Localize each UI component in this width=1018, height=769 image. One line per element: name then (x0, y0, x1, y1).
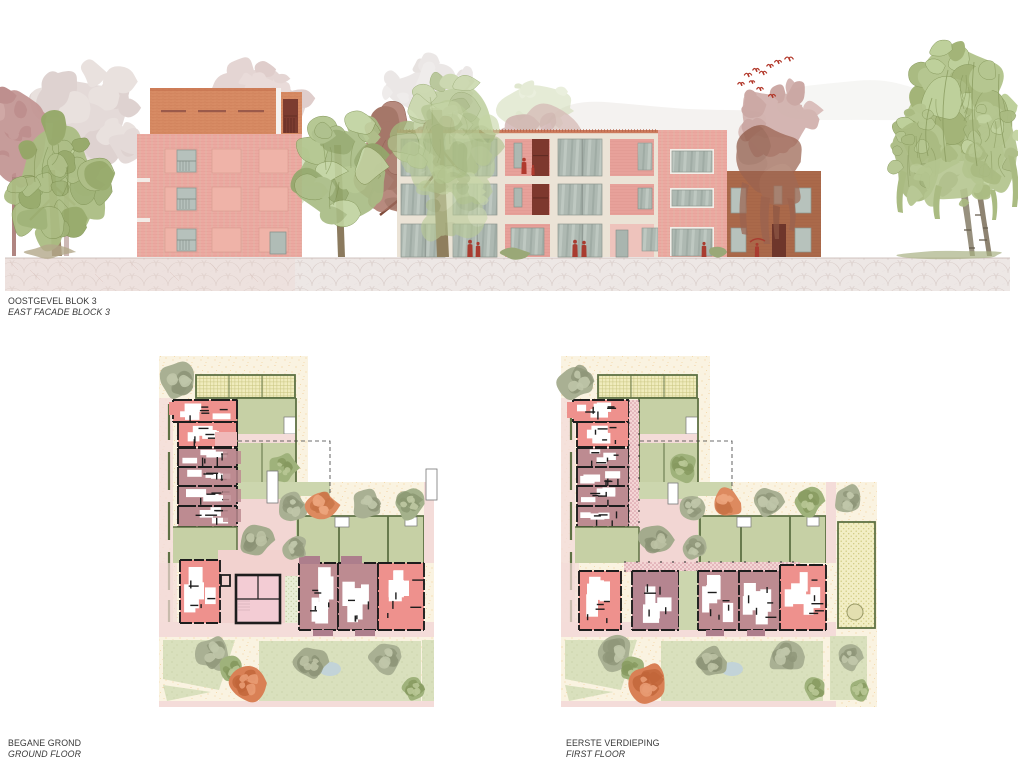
svg-text:FIRST FLOOR: FIRST FLOOR (566, 749, 626, 759)
svg-text:BEGANE GROND: BEGANE GROND (8, 738, 81, 748)
svg-text:OOSTGEVEL BLOK 3: OOSTGEVEL BLOK 3 (8, 296, 97, 306)
svg-text:GROUND FLOOR: GROUND FLOOR (8, 749, 82, 759)
svg-text:EAST FACADE BLOCK 3: EAST FACADE BLOCK 3 (8, 307, 110, 317)
svg-text:EERSTE VERDIEPING: EERSTE VERDIEPING (566, 738, 660, 748)
